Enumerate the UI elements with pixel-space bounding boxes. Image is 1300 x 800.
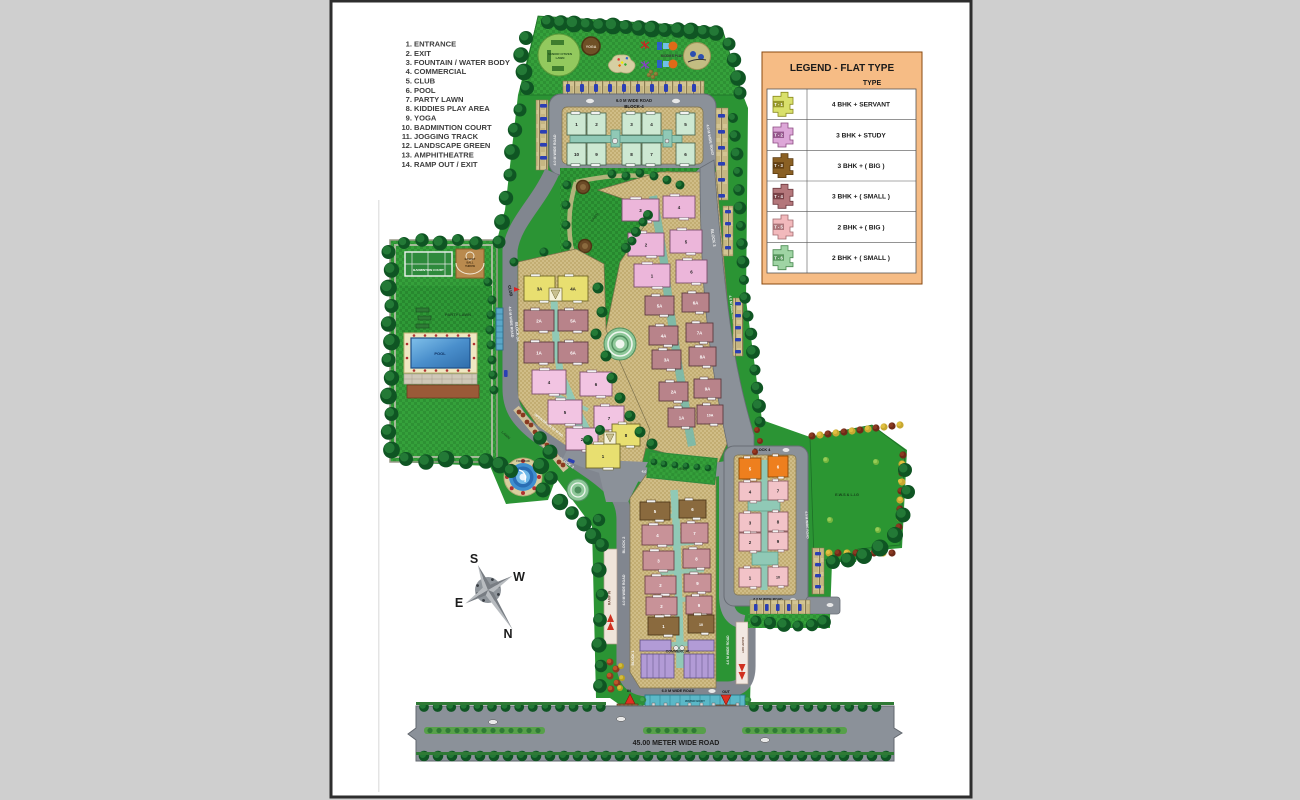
- svg-text:2A: 2A: [671, 389, 677, 394]
- svg-text:2.: 2.: [406, 49, 412, 58]
- svg-text:9: 9: [595, 152, 598, 157]
- svg-text:KIDDIES PLAY AREA: KIDDIES PLAY AREA: [414, 104, 490, 113]
- svg-text:10.: 10.: [401, 123, 412, 132]
- svg-text:RAMP IN: RAMP IN: [608, 590, 612, 605]
- svg-text:6A: 6A: [570, 350, 576, 355]
- svg-text:POOL: POOL: [434, 351, 446, 356]
- svg-text:T - 4: T - 4: [774, 194, 783, 199]
- svg-text:YOGA: YOGA: [586, 45, 597, 49]
- svg-text:T - 6: T - 6: [774, 255, 783, 260]
- svg-text:11.: 11.: [402, 132, 412, 141]
- svg-text:3: 3: [630, 122, 633, 127]
- svg-text:BLOCK-4: BLOCK-4: [624, 104, 644, 109]
- svg-text:2A: 2A: [536, 318, 542, 323]
- svg-text:4.0 M WIDE ROAD: 4.0 M WIDE ROAD: [726, 635, 730, 665]
- svg-text:7A: 7A: [697, 330, 703, 335]
- svg-text:YOGA: YOGA: [414, 114, 437, 123]
- svg-text:T - 2: T - 2: [774, 133, 783, 138]
- svg-text:4.0 M WIDE ROAD: 4.0 M WIDE ROAD: [622, 574, 626, 605]
- svg-text:1: 1: [575, 122, 578, 127]
- svg-text:3 BHK + ( SMALL ): 3 BHK + ( SMALL ): [832, 194, 890, 201]
- svg-text:COMMERCIAL: COMMERCIAL: [666, 650, 692, 654]
- svg-text:7: 7: [650, 152, 653, 157]
- svg-text:4.: 4.: [406, 67, 412, 76]
- svg-text:2 BHK + ( BIG ): 2 BHK + ( BIG ): [837, 224, 884, 231]
- svg-text:T - 1: T - 1: [774, 102, 783, 107]
- svg-text:LANDSCAPE GREEN: LANDSCAPE GREEN: [414, 141, 490, 150]
- svg-text:5A: 5A: [657, 303, 663, 308]
- svg-text:BLOCK 1: BLOCK 1: [631, 650, 635, 665]
- svg-text:S: S: [470, 552, 478, 566]
- svg-text:POOL: POOL: [414, 86, 436, 95]
- svg-text:N: N: [503, 627, 512, 641]
- svg-text:8A: 8A: [700, 354, 706, 359]
- svg-text:4 BHK + SERVANT: 4 BHK + SERVANT: [832, 102, 890, 109]
- svg-text:W: W: [513, 570, 525, 584]
- svg-text:9.: 9.: [406, 114, 412, 123]
- svg-text:13.: 13.: [401, 151, 412, 160]
- svg-text:T - 5: T - 5: [774, 225, 783, 230]
- svg-text:IN: IN: [627, 689, 631, 693]
- svg-text:EXIT: EXIT: [414, 49, 431, 58]
- svg-text:3A: 3A: [664, 357, 670, 362]
- svg-text:PARTY LAWN: PARTY LAWN: [414, 95, 464, 104]
- svg-text:3.: 3.: [406, 58, 412, 67]
- svg-text:1A: 1A: [679, 415, 685, 420]
- svg-text:5.: 5.: [406, 77, 412, 86]
- svg-text:ENTRANCE: ENTRANCE: [414, 40, 456, 49]
- svg-text:6.0 M WIDE ROAD: 6.0 M WIDE ROAD: [616, 98, 652, 103]
- svg-text:4.0 M WIDE ROAD: 4.0 M WIDE ROAD: [553, 134, 557, 165]
- svg-text:4: 4: [650, 122, 653, 127]
- svg-text:4A: 4A: [570, 286, 576, 291]
- svg-text:RAMP OUT: RAMP OUT: [741, 637, 745, 653]
- svg-text:6.: 6.: [406, 86, 412, 95]
- svg-text:JOGGING TRACK: JOGGING TRACK: [414, 132, 479, 141]
- svg-text:BASKET: BASKET: [465, 257, 476, 261]
- svg-text:CLUB: CLUB: [414, 77, 436, 86]
- svg-text:COMMERCIAL: COMMERCIAL: [414, 67, 467, 76]
- svg-text:E.W.S & L.I.G: E.W.S & L.I.G: [835, 493, 859, 497]
- svg-text:10A: 10A: [707, 413, 714, 417]
- svg-text:LAWN: LAWN: [556, 56, 565, 60]
- svg-text:3A: 3A: [537, 286, 543, 291]
- svg-text:PARTY LAWN: PARTY LAWN: [445, 312, 471, 317]
- svg-text:TYPE: TYPE: [863, 80, 882, 87]
- svg-text:6: 6: [684, 152, 687, 157]
- svg-text:6A: 6A: [693, 300, 699, 305]
- svg-text:5A: 5A: [570, 318, 576, 323]
- svg-text:10: 10: [776, 575, 780, 579]
- svg-text:9A: 9A: [705, 386, 711, 391]
- svg-text:BADMINTION COURT: BADMINTION COURT: [414, 123, 492, 132]
- svg-text:2: 2: [595, 122, 598, 127]
- svg-text:E: E: [455, 596, 463, 610]
- svg-text:T - 3: T - 3: [774, 163, 783, 168]
- svg-text:OUT: OUT: [722, 690, 730, 694]
- svg-text:FOUNTAIN: FOUNTAIN: [516, 459, 529, 463]
- svg-text:LEGEND - FLAT TYPE: LEGEND - FLAT TYPE: [790, 63, 895, 74]
- svg-text:WATER BODY: WATER BODY: [685, 699, 705, 703]
- svg-text:1.: 1.: [406, 40, 412, 49]
- svg-text:10: 10: [699, 623, 703, 627]
- svg-text:2 BHK + ( SMALL ): 2 BHK + ( SMALL ): [832, 255, 890, 262]
- svg-text:AMPHITHEATRE: AMPHITHEATRE: [414, 151, 474, 160]
- svg-text:BALL: BALL: [467, 260, 474, 264]
- svg-text:3 BHK + STUDY: 3 BHK + STUDY: [836, 132, 886, 139]
- svg-text:6.0 M WIDE ROAD: 6.0 M WIDE ROAD: [662, 689, 695, 693]
- svg-text:THROW: THROW: [465, 264, 475, 268]
- svg-text:1A: 1A: [536, 350, 542, 355]
- svg-text:BADMINTION COURT: BADMINTION COURT: [413, 268, 444, 272]
- svg-text:7.: 7.: [406, 95, 412, 104]
- svg-text:BLOCK 2: BLOCK 2: [622, 537, 626, 554]
- svg-text:12.: 12.: [401, 141, 412, 150]
- svg-text:5: 5: [684, 122, 687, 127]
- svg-text:8.: 8.: [406, 104, 412, 113]
- svg-text:14.: 14.: [401, 160, 412, 169]
- svg-text:10: 10: [574, 152, 580, 157]
- svg-text:RAMP OUT / EXIT: RAMP OUT / EXIT: [414, 160, 478, 169]
- svg-text:4A: 4A: [661, 333, 667, 338]
- svg-text:8: 8: [630, 152, 633, 157]
- svg-text:FOUNTAIN / WATER BODY: FOUNTAIN / WATER BODY: [414, 58, 510, 67]
- svg-text:3 BHK + ( BIG ): 3 BHK + ( BIG ): [837, 163, 884, 170]
- svg-text:45.00 METER WIDE ROAD: 45.00 METER WIDE ROAD: [633, 740, 720, 747]
